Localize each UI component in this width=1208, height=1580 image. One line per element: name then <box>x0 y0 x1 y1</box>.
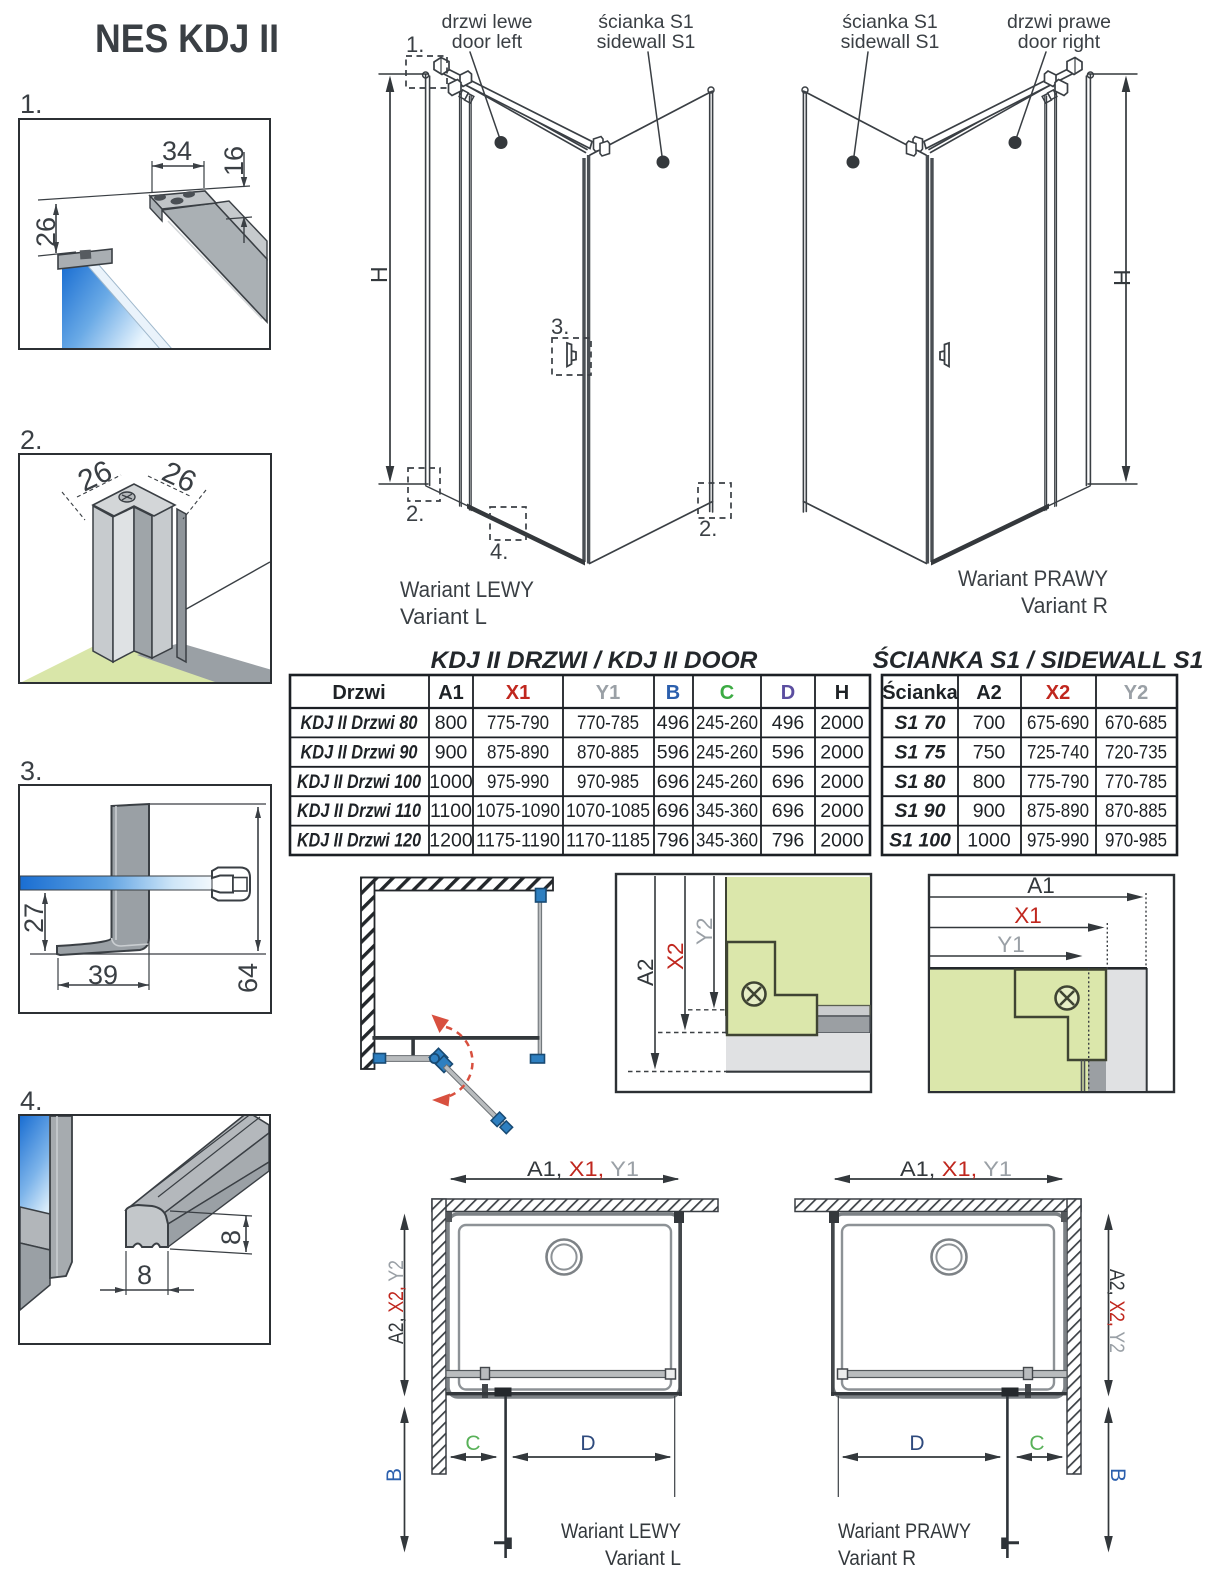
svg-text:496: 496 <box>772 712 805 734</box>
svg-text:696: 696 <box>772 800 805 822</box>
svg-text:C: C <box>720 682 734 704</box>
svg-text:2000: 2000 <box>820 712 864 734</box>
svg-text:770-785: 770-785 <box>1105 771 1167 793</box>
svg-text:696: 696 <box>657 800 690 822</box>
svg-text:775-790: 775-790 <box>1027 771 1089 793</box>
svg-text:S1 75: S1 75 <box>895 741 947 763</box>
svg-text:D: D <box>580 1432 595 1455</box>
svg-text:1000: 1000 <box>967 830 1011 852</box>
svg-text:800: 800 <box>435 712 468 734</box>
svg-text:door left: door left <box>452 31 523 53</box>
svg-text:Variant L: Variant L <box>400 604 487 629</box>
svg-text:KDJ II Drzwi 80: KDJ II Drzwi 80 <box>301 712 418 734</box>
svg-text:345-360: 345-360 <box>696 830 758 852</box>
svg-text:720-735: 720-735 <box>1105 741 1167 763</box>
svg-text:ścianka S1: ścianka S1 <box>842 11 937 33</box>
svg-text:1.: 1. <box>406 32 424 57</box>
svg-text:775-790: 775-790 <box>487 712 549 734</box>
svg-text:496: 496 <box>657 712 690 734</box>
svg-text:S1 70: S1 70 <box>895 712 946 734</box>
svg-text:drzwi prawe: drzwi prawe <box>1007 11 1111 33</box>
svg-text:drzwi lewe: drzwi lewe <box>441 11 532 33</box>
svg-text:975-990: 975-990 <box>1027 830 1089 852</box>
svg-text:875-890: 875-890 <box>1027 800 1089 822</box>
svg-text:970-985: 970-985 <box>577 771 639 793</box>
svg-text:Variant L: Variant L <box>605 1546 681 1570</box>
svg-text:X2: X2 <box>663 942 688 970</box>
svg-text:X1: X1 <box>506 682 530 704</box>
svg-text:Y1: Y1 <box>596 682 620 704</box>
svg-text:1070-1085: 1070-1085 <box>566 800 650 822</box>
svg-text:X1: X1 <box>1014 903 1042 928</box>
svg-text:KDJ II Drzwi 120: KDJ II Drzwi 120 <box>297 830 421 852</box>
svg-text:245-260: 245-260 <box>696 771 758 793</box>
svg-text:16: 16 <box>219 146 249 176</box>
svg-text:64: 64 <box>233 963 263 993</box>
svg-text:H: H <box>366 266 392 283</box>
svg-text:975-990: 975-990 <box>487 771 549 793</box>
svg-text:Y1: Y1 <box>997 932 1025 957</box>
svg-text:ŚCIANKA S1 / SIDEWALL S1: ŚCIANKA S1 / SIDEWALL S1 <box>873 646 1204 674</box>
svg-text:4.: 4. <box>20 1086 43 1116</box>
svg-text:596: 596 <box>772 741 805 763</box>
svg-text:S1 80: S1 80 <box>895 771 946 793</box>
svg-text:8: 8 <box>137 1260 152 1290</box>
svg-text:A2, X2, Y2: A2, X2, Y2 <box>385 1260 408 1344</box>
svg-text:A2, X2, Y2: A2, X2, Y2 <box>1105 1269 1128 1353</box>
svg-text:26: 26 <box>157 455 201 499</box>
svg-text:2000: 2000 <box>820 800 864 822</box>
svg-text:1175-1190: 1175-1190 <box>476 830 560 852</box>
svg-text:700: 700 <box>973 712 1006 734</box>
svg-text:900: 900 <box>435 741 468 763</box>
svg-text:A1: A1 <box>438 682 464 704</box>
svg-text:345-360: 345-360 <box>696 800 758 822</box>
svg-text:39: 39 <box>88 960 118 990</box>
svg-text:8: 8 <box>216 1230 246 1245</box>
svg-text:B: B <box>666 682 680 704</box>
svg-text:245-260: 245-260 <box>696 741 758 763</box>
svg-text:C: C <box>465 1432 480 1455</box>
svg-text:2.: 2. <box>699 516 717 541</box>
svg-text:A1, X1, Y1: A1, X1, Y1 <box>900 1158 1012 1181</box>
svg-text:1200: 1200 <box>429 830 473 852</box>
svg-text:KDJ II Drzwi 90: KDJ II Drzwi 90 <box>301 741 418 763</box>
svg-text:675-690: 675-690 <box>1027 712 1089 734</box>
svg-text:H: H <box>1109 269 1135 286</box>
svg-text:door right: door right <box>1018 31 1101 53</box>
svg-text:NES KDJ II: NES KDJ II <box>95 17 279 61</box>
svg-text:1000: 1000 <box>429 771 473 793</box>
svg-text:1.: 1. <box>20 89 43 119</box>
svg-text:27: 27 <box>19 903 49 933</box>
svg-text:870-885: 870-885 <box>577 741 639 763</box>
svg-text:26: 26 <box>31 217 61 247</box>
svg-text:Wariant LEWY: Wariant LEWY <box>561 1519 681 1543</box>
svg-text:750: 750 <box>973 741 1006 763</box>
svg-text:A2: A2 <box>976 682 1002 704</box>
svg-text:A1: A1 <box>1027 873 1055 898</box>
svg-text:Y2: Y2 <box>1124 682 1148 704</box>
svg-text:D: D <box>909 1432 924 1455</box>
svg-text:26: 26 <box>73 454 117 498</box>
svg-text:1075-1090: 1075-1090 <box>476 800 560 822</box>
svg-text:Drzwi: Drzwi <box>332 682 385 704</box>
svg-text:sidewall S1: sidewall S1 <box>597 31 696 53</box>
svg-text:875-890: 875-890 <box>487 741 549 763</box>
svg-text:970-985: 970-985 <box>1105 830 1167 852</box>
svg-text:Ścianka: Ścianka <box>882 680 958 704</box>
svg-text:2000: 2000 <box>820 741 864 763</box>
svg-text:796: 796 <box>772 830 805 852</box>
svg-text:B: B <box>1106 1468 1129 1482</box>
svg-text:Wariant LEWY: Wariant LEWY <box>400 577 534 602</box>
svg-text:725-740: 725-740 <box>1027 741 1089 763</box>
svg-text:3.: 3. <box>20 756 43 786</box>
svg-text:D: D <box>781 682 795 704</box>
svg-text:245-260: 245-260 <box>696 712 758 734</box>
svg-text:2.: 2. <box>406 501 424 526</box>
svg-text:Wariant PRAWY: Wariant PRAWY <box>958 566 1108 591</box>
svg-text:Wariant PRAWY: Wariant PRAWY <box>838 1519 971 1543</box>
svg-text:2.: 2. <box>20 425 43 455</box>
svg-text:C: C <box>1029 1432 1044 1455</box>
svg-text:696: 696 <box>772 771 805 793</box>
svg-text:696: 696 <box>657 771 690 793</box>
svg-text:ścianka S1: ścianka S1 <box>598 11 693 33</box>
svg-text:800: 800 <box>973 771 1006 793</box>
svg-text:KDJ II Drzwi 100: KDJ II Drzwi 100 <box>297 771 421 793</box>
svg-text:1100: 1100 <box>430 800 472 822</box>
svg-text:3.: 3. <box>551 314 569 339</box>
svg-text:H: H <box>835 682 849 704</box>
svg-text:Variant R: Variant R <box>838 1546 916 1570</box>
svg-text:900: 900 <box>973 800 1006 822</box>
svg-text:KDJ II DRZWI / KDJ II DOOR: KDJ II DRZWI / KDJ II DOOR <box>431 647 758 674</box>
svg-text:34: 34 <box>162 136 192 166</box>
svg-text:870-885: 870-885 <box>1105 800 1167 822</box>
svg-text:1170-1185: 1170-1185 <box>566 830 650 852</box>
svg-text:596: 596 <box>657 741 690 763</box>
svg-text:B: B <box>383 1468 406 1482</box>
svg-text:770-785: 770-785 <box>577 712 639 734</box>
svg-text:Variant R: Variant R <box>1021 593 1108 618</box>
svg-text:A1, X1, Y1: A1, X1, Y1 <box>527 1158 639 1181</box>
svg-text:S1 90: S1 90 <box>895 800 946 822</box>
svg-text:X2: X2 <box>1046 682 1070 704</box>
svg-text:sidewall S1: sidewall S1 <box>841 31 940 53</box>
svg-text:A2: A2 <box>633 958 658 986</box>
svg-text:2000: 2000 <box>820 771 864 793</box>
svg-text:S1 100: S1 100 <box>889 830 951 852</box>
svg-text:KDJ II Drzwi 110: KDJ II Drzwi 110 <box>297 800 421 822</box>
svg-text:4.: 4. <box>490 539 508 564</box>
svg-text:670-685: 670-685 <box>1105 712 1167 734</box>
svg-text:796: 796 <box>657 830 690 852</box>
svg-text:2000: 2000 <box>820 830 864 852</box>
svg-text:Y2: Y2 <box>692 917 717 945</box>
